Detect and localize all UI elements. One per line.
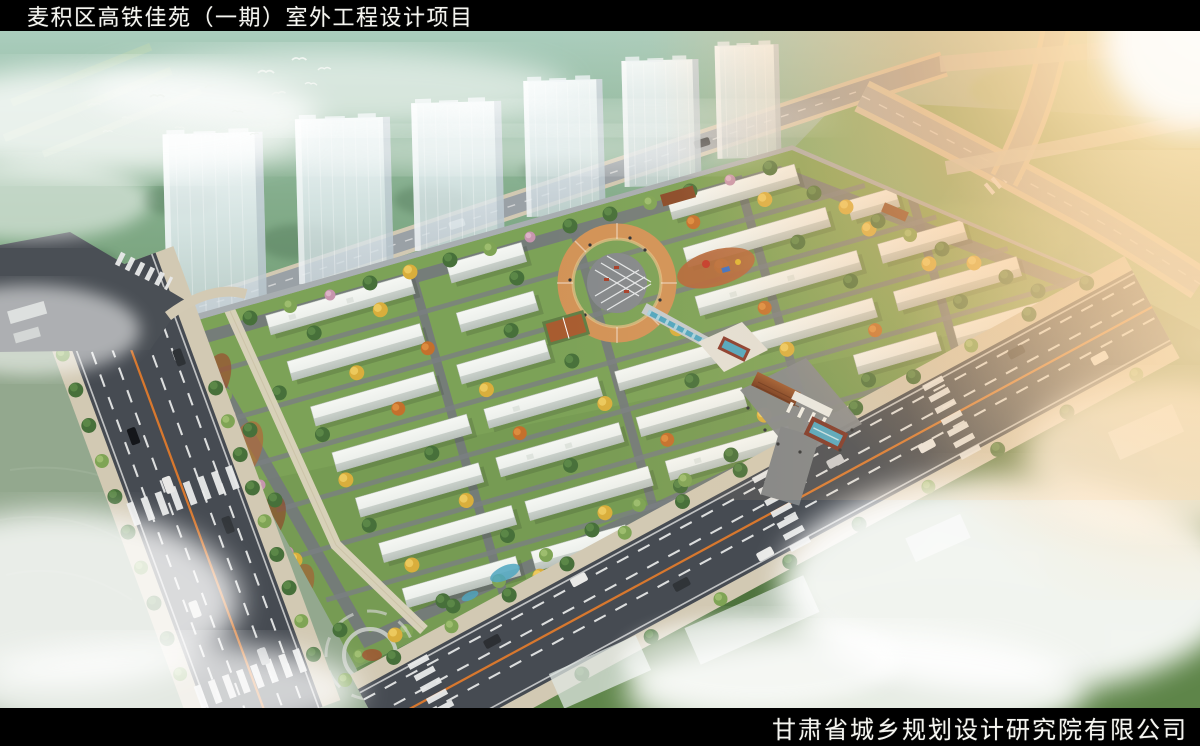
aerial-rendering <box>0 0 1200 746</box>
project-title: 麦积区高铁佳苑（一期）室外工程设计项目 <box>27 0 474 32</box>
credit-bar: 甘肃省城乡规划设计研究院有限公司 <box>0 708 1200 746</box>
project-poster: 麦积区高铁佳苑（一期）室外工程设计项目 甘肃省城乡规划设计研究院有限公司 <box>0 0 1200 746</box>
title-bar: 麦积区高铁佳苑（一期）室外工程设计项目 <box>0 0 1200 31</box>
company-name: 甘肃省城乡规划设计研究院有限公司 <box>772 710 1188 745</box>
